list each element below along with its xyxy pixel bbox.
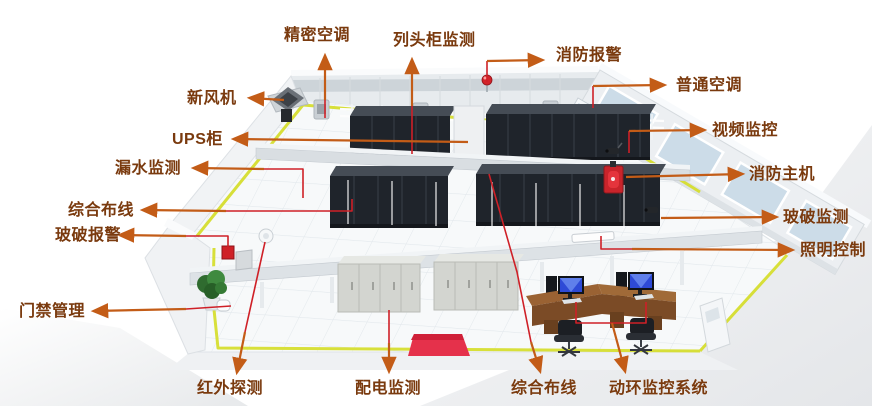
fire-extinguisher-icon xyxy=(604,161,623,193)
power-cabinet-icon xyxy=(338,256,426,312)
label-integrated-cabling-bottom: 综合布线 xyxy=(511,380,577,398)
label-video-surveillance: 视频监控 xyxy=(712,122,778,140)
datacenter-monitoring-diagram: 新风机 精密空调 列头柜监测 消防报警 普通空调 UPS柜 视频监控 漏水监测 … xyxy=(0,0,872,406)
label-fire-host: 消防主机 xyxy=(749,166,815,184)
label-lighting-control: 照明控制 xyxy=(800,242,866,260)
door-panel xyxy=(236,250,252,270)
power-cabinet-icon xyxy=(434,254,524,310)
infrared-dome-icon xyxy=(259,229,273,243)
label-access-control: 门禁管理 xyxy=(19,303,85,321)
label-normal-ac: 普通空调 xyxy=(676,77,742,95)
glass-break-sensor-icon xyxy=(644,207,658,213)
label-water-leak-monitoring: 漏水监测 xyxy=(115,160,181,178)
label-row-head-cabinet-monitoring: 列头柜监测 xyxy=(393,32,476,50)
label-power-env-monitoring-system: 动环监控系统 xyxy=(609,380,708,398)
label-ups-cabinet: UPS柜 xyxy=(172,131,223,149)
label-fresh-air-unit: 新风机 xyxy=(187,90,237,108)
red-carpet-icon xyxy=(408,334,470,356)
label-integrated-cabling-left: 综合布线 xyxy=(68,202,134,220)
row-head-cabinet-icon xyxy=(454,106,484,160)
server-rack-icon xyxy=(476,164,666,226)
label-power-distribution-monitoring: 配电监测 xyxy=(355,380,421,398)
label-fire-alarm: 消防报警 xyxy=(556,47,622,65)
label-infrared-detection: 红外探测 xyxy=(197,380,263,398)
label-glass-break-alarm: 玻破报警 xyxy=(55,227,121,245)
label-glass-break-monitoring: 玻破监测 xyxy=(783,209,849,227)
label-precision-ac: 精密空调 xyxy=(284,27,350,45)
